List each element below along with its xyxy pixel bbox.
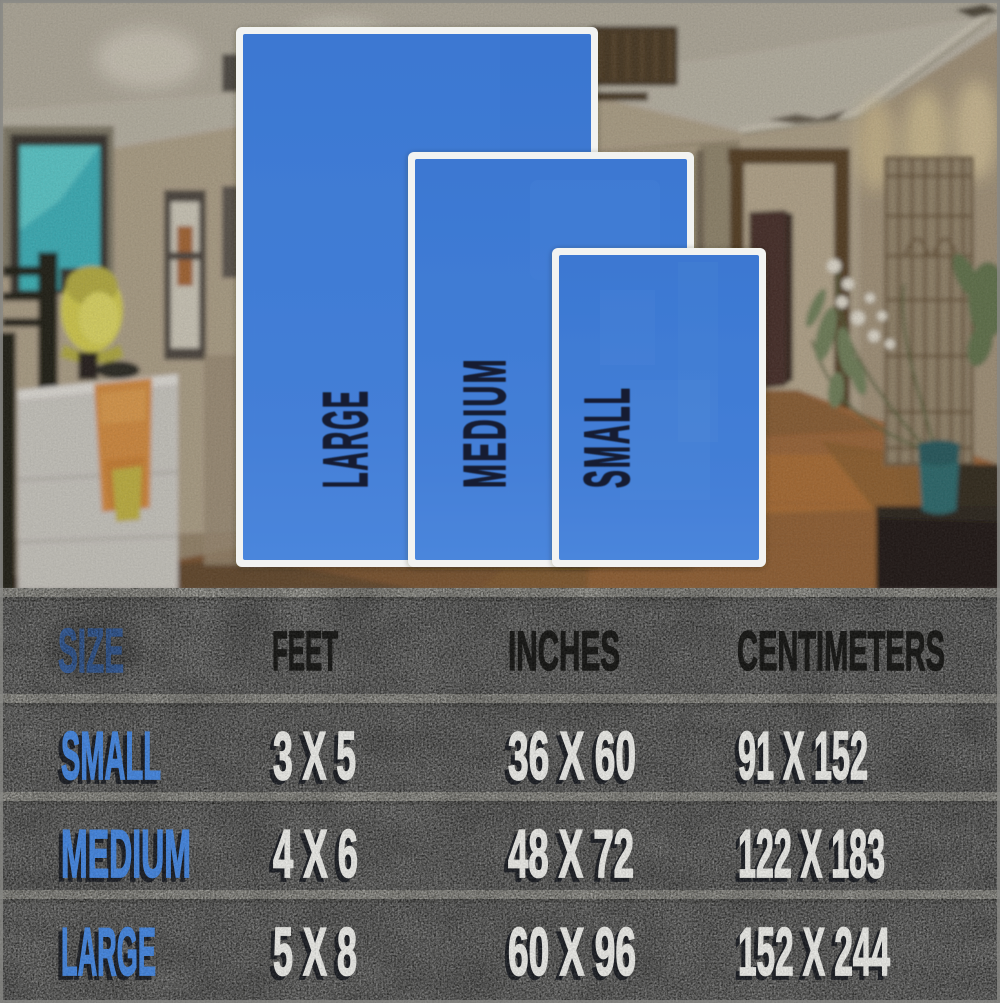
svg-text:MEDIUM: MEDIUM <box>452 357 518 488</box>
svg-text:SMALL: SMALL <box>571 386 643 488</box>
svg-text:LARGE: LARGE <box>311 389 381 488</box>
